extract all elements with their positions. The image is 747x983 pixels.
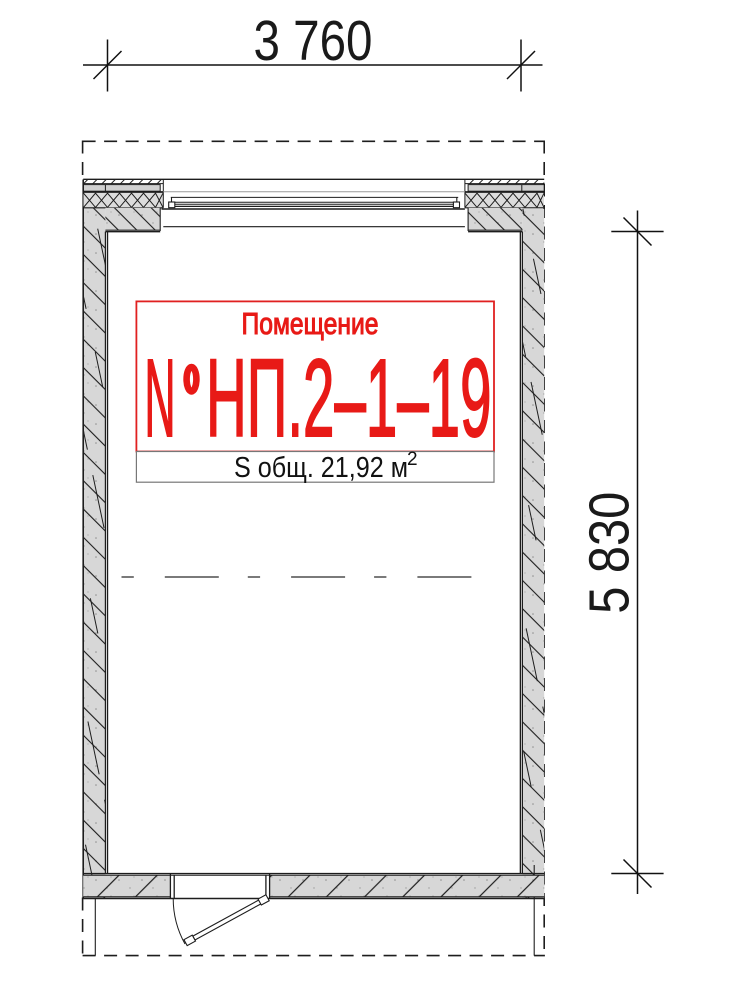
svg-text:3 760: 3 760 xyxy=(254,9,373,73)
svg-text:2: 2 xyxy=(407,449,418,470)
svg-text:S общ. 21,92 м: S общ. 21,92 м xyxy=(234,452,408,484)
svg-text:Помещение: Помещение xyxy=(242,306,379,341)
svg-text:N: N xyxy=(145,337,176,460)
svg-text:НП.2–1–19: НП.2–1–19 xyxy=(206,337,492,460)
svg-text:5 830: 5 830 xyxy=(578,492,642,614)
